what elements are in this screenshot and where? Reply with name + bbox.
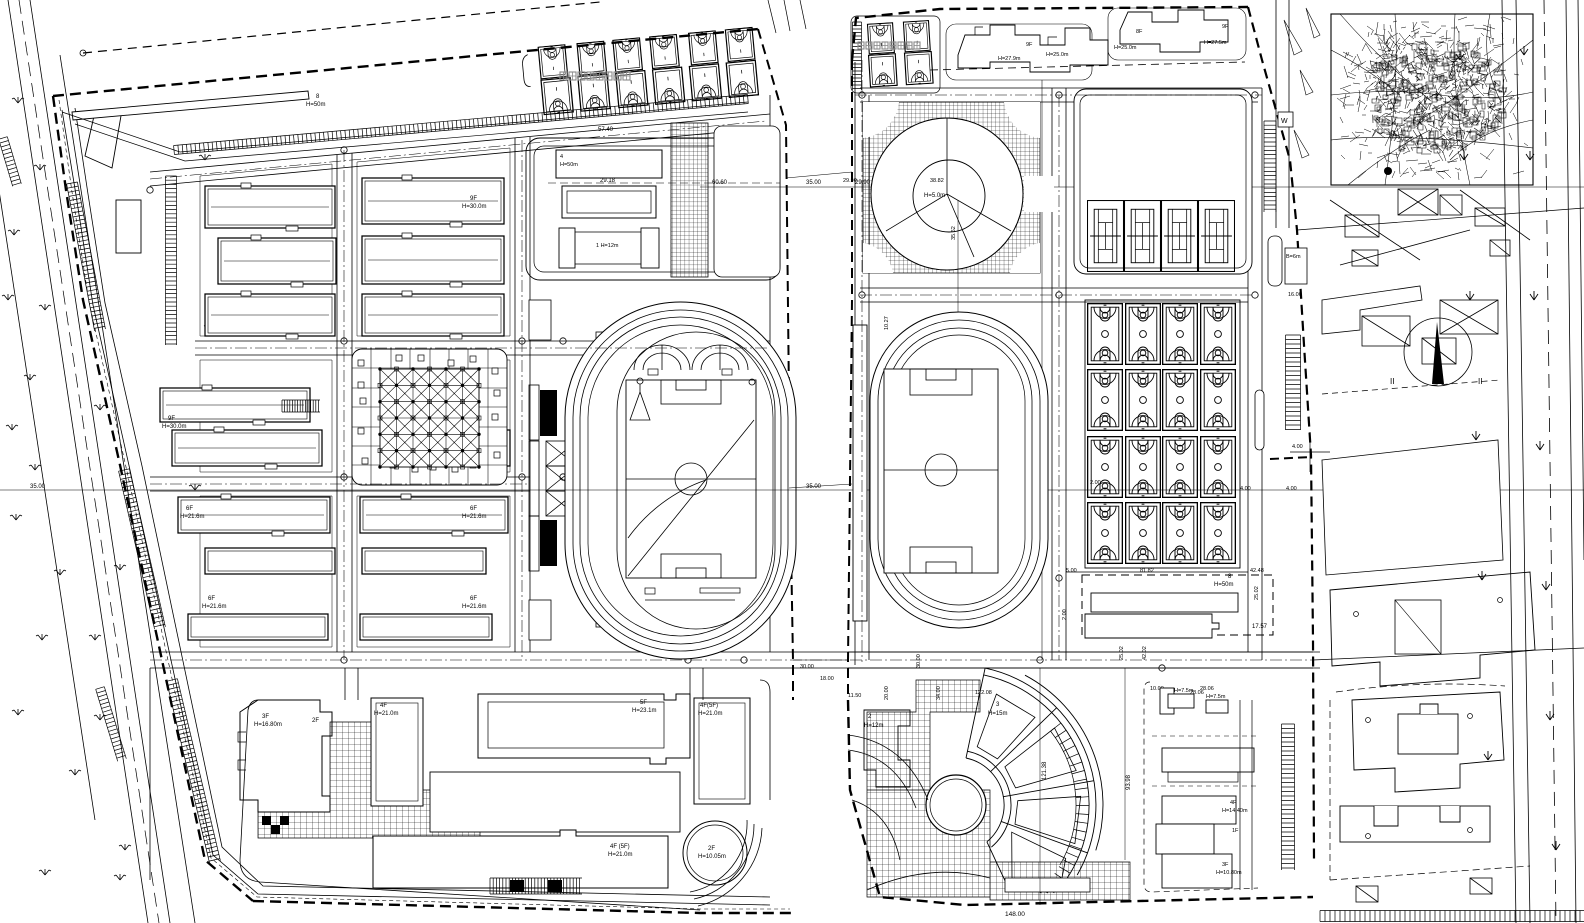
svg-text:H=21.6m: H=21.6m	[202, 604, 227, 610]
svg-text:42.02: 42.02	[1142, 646, 1148, 660]
svg-text:93.98: 93.98	[1126, 774, 1132, 790]
svg-text:4F (5F): 4F (5F)	[610, 844, 630, 850]
svg-text:9F: 9F	[470, 196, 477, 202]
svg-text:1F: 1F	[1232, 828, 1239, 834]
svg-text:H=50m: H=50m	[560, 162, 578, 168]
svg-text:30.00: 30.00	[800, 664, 814, 670]
svg-text:9F: 9F	[1026, 42, 1033, 48]
svg-text:4.00: 4.00	[1286, 486, 1297, 492]
svg-text:5F: 5F	[640, 700, 647, 706]
svg-text:H=30.0m: H=30.0m	[162, 424, 187, 430]
svg-text:11.50: 11.50	[848, 693, 861, 699]
svg-text:H=50m: H=50m	[306, 102, 326, 108]
svg-text:35.00: 35.00	[30, 484, 46, 490]
svg-text:6F: 6F	[470, 506, 477, 512]
svg-text:16.00: 16.00	[1288, 292, 1302, 298]
svg-text:6F: 6F	[186, 506, 193, 512]
svg-text:H=23.1m: H=23.1m	[632, 708, 657, 714]
svg-text:3F: 3F	[262, 714, 269, 720]
svg-text:18.00: 18.00	[820, 676, 834, 682]
svg-text:9F: 9F	[168, 416, 175, 422]
svg-text:34.00: 34.00	[936, 686, 942, 700]
svg-text:H=15m: H=15m	[988, 711, 1008, 717]
svg-text:29.18: 29.18	[600, 178, 616, 184]
svg-text:H=21.0m: H=21.0m	[608, 852, 633, 858]
svg-text:2F: 2F	[708, 846, 715, 852]
svg-text:H=25.0m: H=25.0m	[1114, 45, 1137, 51]
svg-text:H=7.5m: H=7.5m	[1206, 694, 1226, 700]
svg-text:H=10.05m: H=10.05m	[698, 854, 726, 860]
svg-text:148.00: 148.00	[1005, 911, 1025, 918]
svg-text:H=27.9m: H=27.9m	[998, 56, 1021, 62]
svg-text:3F: 3F	[1222, 862, 1229, 868]
svg-text:20.00: 20.00	[884, 686, 890, 700]
svg-text:38.82: 38.82	[930, 178, 944, 184]
svg-text:2F: 2F	[312, 718, 319, 724]
svg-text:25.02: 25.02	[1254, 586, 1260, 600]
svg-text:H=21.6m: H=21.6m	[462, 604, 487, 610]
svg-text:81.82: 81.82	[1140, 568, 1154, 574]
svg-text:17.57: 17.57	[1252, 624, 1268, 630]
svg-text:H=50m: H=50m	[1214, 582, 1234, 588]
svg-text:H=5.0m: H=5.0m	[924, 193, 945, 199]
svg-text:6F: 6F	[208, 596, 215, 602]
svg-text:H=21.6m: H=21.6m	[462, 514, 487, 520]
svg-text:B=6m: B=6m	[1286, 254, 1301, 260]
svg-text:4F: 4F	[1230, 800, 1237, 806]
svg-text:H=14.40m: H=14.40m	[1222, 808, 1248, 814]
svg-text:25.02: 25.02	[1119, 646, 1125, 660]
svg-text:35.62: 35.62	[951, 226, 957, 240]
svg-text:30.00: 30.00	[916, 654, 922, 668]
svg-text:4F: 4F	[380, 703, 387, 709]
svg-text:2.00: 2.00	[1062, 609, 1068, 620]
svg-text:H=25.0m: H=25.0m	[1046, 52, 1069, 58]
svg-text:H=27.5m: H=27.5m	[1204, 40, 1227, 46]
svg-text:6F: 6F	[470, 596, 477, 602]
svg-text:122.08: 122.08	[975, 690, 992, 696]
svg-text:1 H=12m: 1 H=12m	[596, 243, 619, 249]
svg-text:H=10.80m: H=10.80m	[1216, 870, 1242, 876]
svg-text:57.40: 57.40	[598, 127, 614, 133]
svg-text:5.00: 5.00	[1066, 568, 1077, 574]
svg-text:60.60: 60.60	[712, 180, 728, 186]
svg-text:H=16.80m: H=16.80m	[254, 722, 282, 728]
svg-text:H=30.0m: H=30.0m	[462, 204, 487, 210]
svg-text:H=21.0m: H=21.0m	[374, 711, 399, 717]
svg-text:8F: 8F	[1136, 29, 1143, 35]
svg-text:35.00: 35.00	[806, 180, 822, 186]
svg-text:121.38: 121.38	[1042, 761, 1048, 780]
svg-text:42.48: 42.48	[1250, 568, 1264, 574]
svg-text:II: II	[1390, 377, 1394, 386]
svg-text:4.00: 4.00	[1240, 486, 1251, 492]
svg-text:H=21.0m: H=21.0m	[698, 711, 723, 717]
svg-text:4: 4	[560, 154, 563, 160]
svg-text:9F: 9F	[1222, 24, 1229, 30]
svg-text:H=21.6m: H=21.6m	[180, 514, 205, 520]
svg-text:10.27: 10.27	[884, 316, 890, 330]
svg-text:4F(5F): 4F(5F)	[700, 703, 718, 709]
svg-text:W: W	[1281, 118, 1288, 125]
svg-text:29.90: 29.90	[843, 178, 857, 184]
svg-text:4.00: 4.00	[1292, 444, 1303, 450]
svg-text:H=7.5m: H=7.5m	[1174, 688, 1194, 694]
